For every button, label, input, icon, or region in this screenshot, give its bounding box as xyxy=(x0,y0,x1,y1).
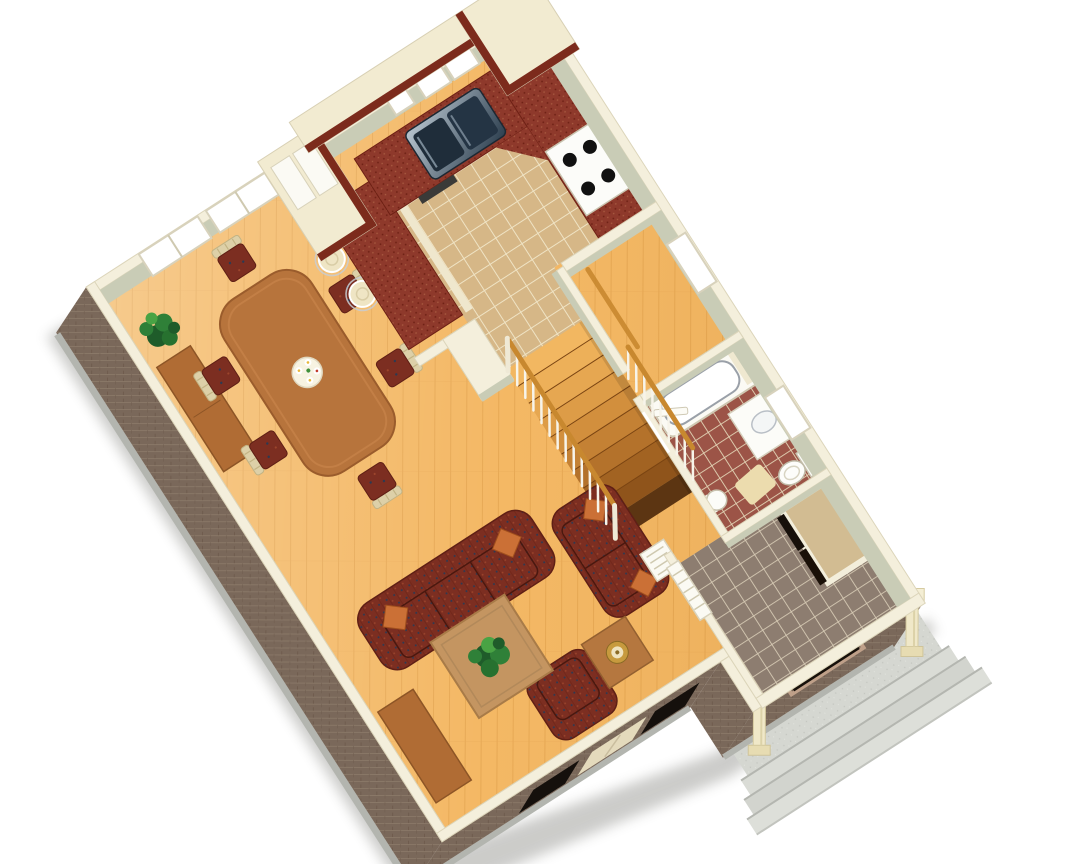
floor-plan-rendering xyxy=(0,0,1080,864)
loveseat-pillow-1 xyxy=(584,499,606,521)
sofa-pillow-left xyxy=(383,605,408,630)
house-isometric-group xyxy=(21,0,992,864)
floor-plan-stage xyxy=(0,0,1080,864)
